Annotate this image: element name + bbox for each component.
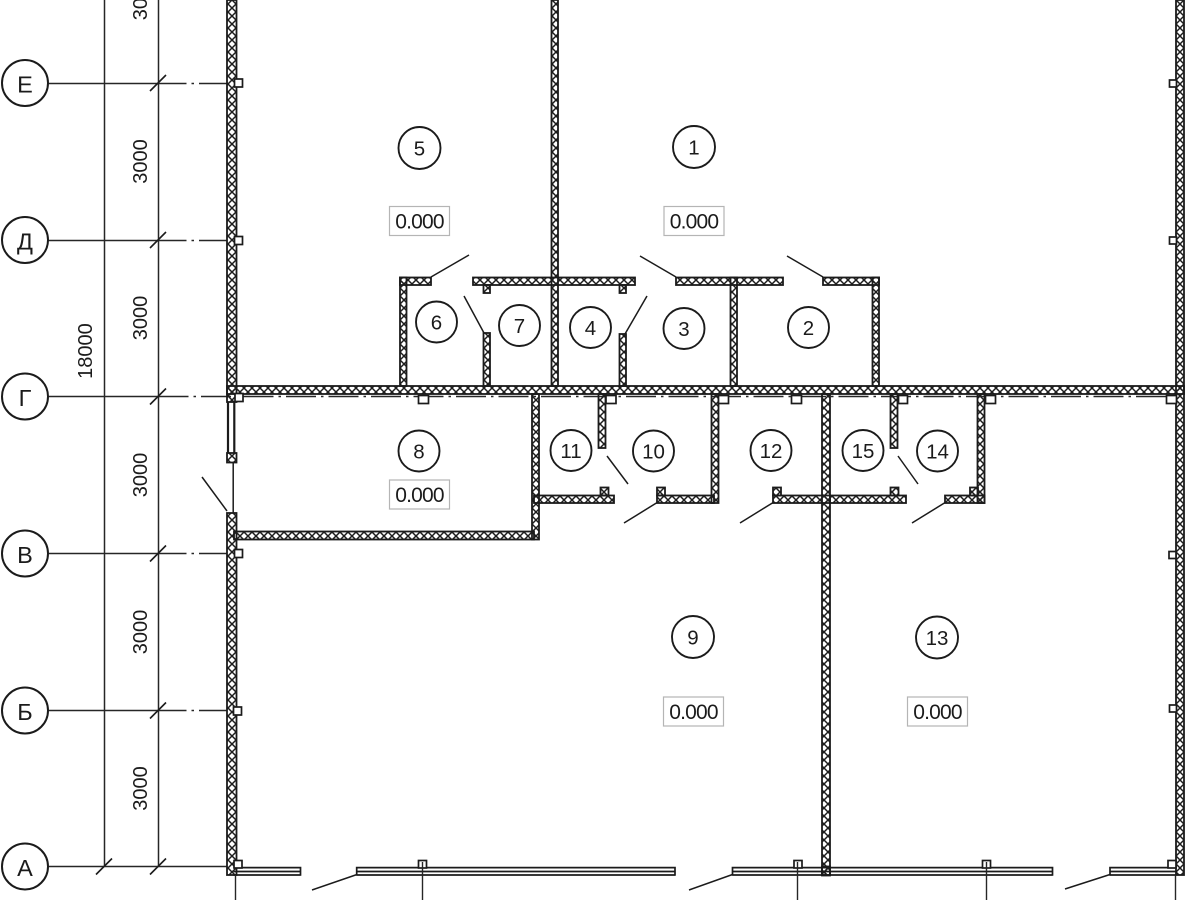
svg-text:0.000: 0.000 [395,484,444,507]
svg-text:0.000: 0.000 [395,211,444,234]
svg-text:10: 10 [642,441,665,464]
svg-text:Б: Б [17,699,32,725]
svg-text:14: 14 [926,441,949,464]
svg-text:3000: 3000 [130,610,152,655]
svg-text:15: 15 [852,440,875,463]
svg-text:11: 11 [560,440,581,463]
svg-text:6: 6 [431,312,442,335]
svg-text:3000: 3000 [130,296,152,341]
svg-text:3000: 3000 [130,139,152,184]
svg-text:Е: Е [17,72,33,98]
svg-text:Г: Г [19,385,32,411]
svg-text:9: 9 [687,627,698,650]
svg-text:4: 4 [585,317,596,340]
svg-text:12: 12 [760,440,783,463]
svg-text:3: 3 [678,318,689,341]
svg-text:13: 13 [926,627,949,650]
svg-text:0.000: 0.000 [669,701,718,724]
svg-text:3000: 3000 [130,766,152,811]
svg-text:5: 5 [414,138,425,161]
svg-text:А: А [17,855,33,881]
svg-text:В: В [17,542,33,568]
svg-text:7: 7 [514,315,525,338]
svg-text:Д: Д [17,229,33,255]
svg-text:3000: 3000 [130,453,152,498]
svg-text:0.000: 0.000 [670,211,719,234]
svg-text:1: 1 [688,137,699,160]
svg-text:2: 2 [803,317,814,340]
svg-text:8: 8 [413,441,424,464]
svg-text:3000: 3000 [130,0,152,20]
svg-text:18000: 18000 [75,323,97,379]
svg-text:0.000: 0.000 [913,701,962,724]
